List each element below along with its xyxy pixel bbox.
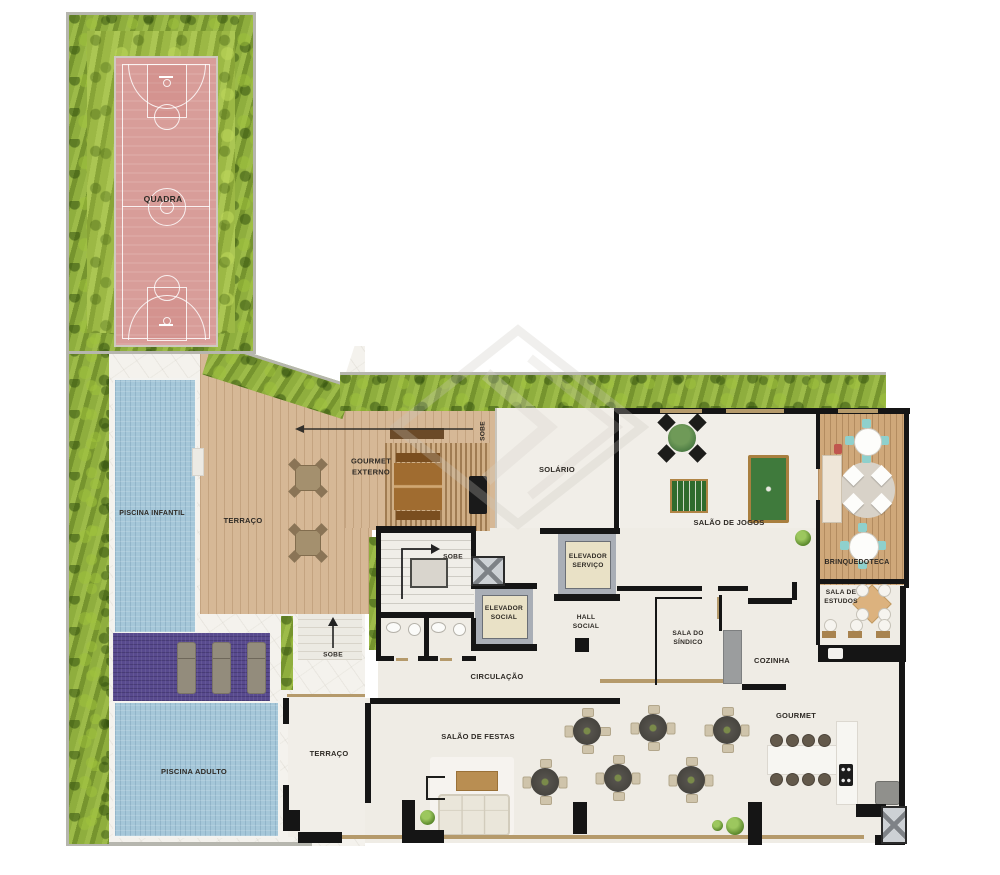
chair [613, 755, 625, 764]
label-solario: SOLÁRIO [539, 465, 575, 476]
wall-east-gourmet [899, 662, 905, 808]
shaft-core [471, 556, 505, 586]
chair [878, 584, 891, 597]
study-desk [876, 631, 890, 638]
terrace-table [295, 465, 321, 491]
label-gourmet-externo: GOURMET EXTERNO [351, 457, 391, 478]
stool [786, 734, 799, 747]
wc-toilet [408, 623, 421, 636]
floor-plan: QUADRA PISCINA INFANTIL PISCINA ADULTO T… [0, 0, 1000, 875]
chair [648, 742, 660, 751]
chair [862, 419, 871, 428]
pillar-s1 [573, 802, 587, 834]
label-piscina-infantil: PISCINA INFANTIL [119, 509, 185, 519]
chair [722, 707, 734, 716]
round-table-top [854, 428, 882, 456]
playroom-table [848, 422, 886, 460]
wall-party-north [370, 698, 620, 704]
table-top [573, 717, 601, 745]
foosball-table [670, 479, 708, 513]
plant [712, 820, 723, 831]
chair [722, 744, 734, 753]
cooktop [839, 764, 853, 786]
table-top [677, 766, 705, 794]
terrace-deck-lowerleft [200, 528, 372, 614]
plant [795, 530, 811, 546]
games-table [662, 418, 702, 458]
dining-table [526, 763, 564, 801]
terrace-table [295, 530, 321, 556]
wall-wc-bottom [376, 656, 394, 661]
planter [281, 616, 293, 690]
label-piscina-adulto: PISCINA ADULTO [161, 767, 227, 778]
wall-playroom-south [818, 579, 908, 584]
chair [845, 436, 854, 445]
wall-party-west [365, 703, 371, 803]
label-sobe-stairs: SOBE [443, 552, 463, 561]
chair [686, 794, 698, 803]
counter-sink [828, 648, 843, 659]
wall-wc-bottom [418, 656, 438, 661]
table-top [531, 768, 559, 796]
elev-servico-capb [554, 594, 620, 601]
rim-top [163, 79, 171, 87]
label-salao-festas: SALÃO DE FESTAS [441, 732, 515, 743]
chair [540, 759, 552, 768]
wall-lt-west [283, 698, 289, 724]
gourmet-counter [836, 721, 858, 805]
wall-wc-right [471, 618, 476, 646]
deck-arrow [293, 423, 477, 435]
fridge [875, 781, 900, 805]
chair [540, 796, 552, 805]
table-top [604, 764, 632, 792]
wall-lt-south [298, 832, 342, 843]
wall-wc-bottom [462, 656, 476, 661]
wall-lower-terrace-north [287, 694, 365, 697]
playroom-cabinet [822, 455, 842, 523]
wall-sindico-east [719, 595, 722, 631]
round-table-top [668, 424, 696, 452]
stool [802, 773, 815, 786]
label-sobe-terrace: SOBE [323, 650, 343, 659]
label-gourmet: GOURMET [776, 711, 816, 722]
table-top [713, 716, 741, 744]
label-sobe-pergola: SOBE [478, 421, 487, 441]
label-circulacao: CIRCULAÇÃO [471, 672, 524, 683]
steps-up-arrow [326, 616, 340, 650]
backboard-top [159, 76, 173, 78]
plant [420, 810, 435, 825]
label-brinquedoteca: BRINQUEDOTECA [824, 558, 889, 568]
wall-gourmet-north [742, 684, 786, 690]
wall-playroom-west [816, 500, 820, 588]
dining-table [672, 761, 710, 799]
lounger [247, 642, 266, 694]
coffee-table [456, 771, 498, 791]
chair [858, 523, 867, 532]
study-desk [848, 631, 862, 638]
label-sala-sindico: SALA DO SÍNDICO [672, 629, 703, 647]
duct-shaft [881, 806, 907, 844]
pool-step [192, 448, 204, 476]
wall-right-playroom [904, 412, 909, 588]
label-terraco-upper: TERRAÇO [224, 516, 263, 527]
lounger [177, 642, 196, 694]
chair [741, 725, 750, 737]
stool [802, 734, 815, 747]
armchair [426, 776, 445, 800]
chair [582, 745, 594, 754]
stool [770, 734, 783, 747]
chair [705, 775, 714, 787]
pillar-s2 [748, 802, 762, 845]
wc-sink [431, 622, 446, 633]
stool [818, 773, 831, 786]
hall-pillar [575, 638, 589, 652]
wall-wc-mid [424, 618, 429, 660]
label-quadra: QUADRA [144, 194, 183, 206]
rim-bottom [163, 317, 171, 325]
chair [559, 777, 568, 789]
gourmet-bar [767, 745, 839, 775]
label-elevador-servico: ELEVADOR SERVIÇO [569, 552, 607, 570]
wall-wc-left [376, 618, 381, 660]
dining-table [568, 712, 606, 750]
stool [818, 734, 831, 747]
wall-sindico-west [655, 597, 657, 685]
window-top [726, 409, 784, 413]
chair [648, 705, 660, 714]
label-hall-social: HALL SOCIAL [573, 613, 599, 631]
lounger [212, 642, 231, 694]
label-elevador-social: ELEVADOR SOCIAL [485, 604, 523, 622]
wall-lt-west [283, 785, 289, 813]
dining-table [708, 711, 746, 749]
stairs-arrow [396, 541, 444, 603]
chair [582, 708, 594, 717]
sofa [438, 794, 510, 836]
wall-playroom-west [816, 414, 820, 469]
fridge-cabinet [723, 630, 742, 684]
window-lt-south [340, 835, 404, 839]
chair [686, 757, 698, 766]
label-sala-estudos: SALA DE ESTUDOS [824, 588, 858, 606]
pool-table [748, 455, 789, 523]
wall-corridor-south [600, 679, 723, 683]
wall-kitchen-east [792, 582, 797, 600]
study-desk [822, 631, 836, 638]
wall-games-south [617, 586, 702, 591]
kids-pool [113, 378, 197, 634]
wall-study-west [816, 585, 820, 645]
wall-stairs-left [376, 533, 381, 613]
chair [856, 584, 869, 597]
chair [613, 792, 625, 801]
garden-strip-left [66, 348, 109, 844]
wall-games-south [718, 586, 748, 591]
chair [667, 723, 676, 735]
label-cozinha: COZINHA [754, 656, 790, 667]
wc-toilet [453, 623, 466, 636]
quadra-garden [66, 12, 256, 354]
plant [726, 817, 744, 835]
wc-sink [386, 622, 401, 633]
dining-table [634, 709, 672, 747]
window-top [838, 409, 878, 413]
label-terraco-lower: TERRAÇO [310, 749, 349, 760]
chair [840, 541, 849, 550]
wall-sindico-north [656, 597, 702, 599]
dining-table [599, 759, 637, 797]
pillar-sw [402, 830, 444, 843]
label-salao-jogos: SALÃO DE JOGOS [693, 518, 764, 529]
window-south [440, 835, 864, 839]
elev-social-capb [471, 644, 537, 651]
stool [786, 773, 799, 786]
wall-study-east [900, 586, 906, 646]
stool [770, 773, 783, 786]
chair [632, 773, 641, 785]
wc-door [396, 658, 408, 661]
window-top [660, 409, 702, 413]
table-top [639, 714, 667, 742]
toy [834, 444, 842, 454]
wall-kitchen-north [748, 598, 792, 604]
wc-door [440, 658, 452, 661]
wall-lt-corner [283, 810, 300, 831]
